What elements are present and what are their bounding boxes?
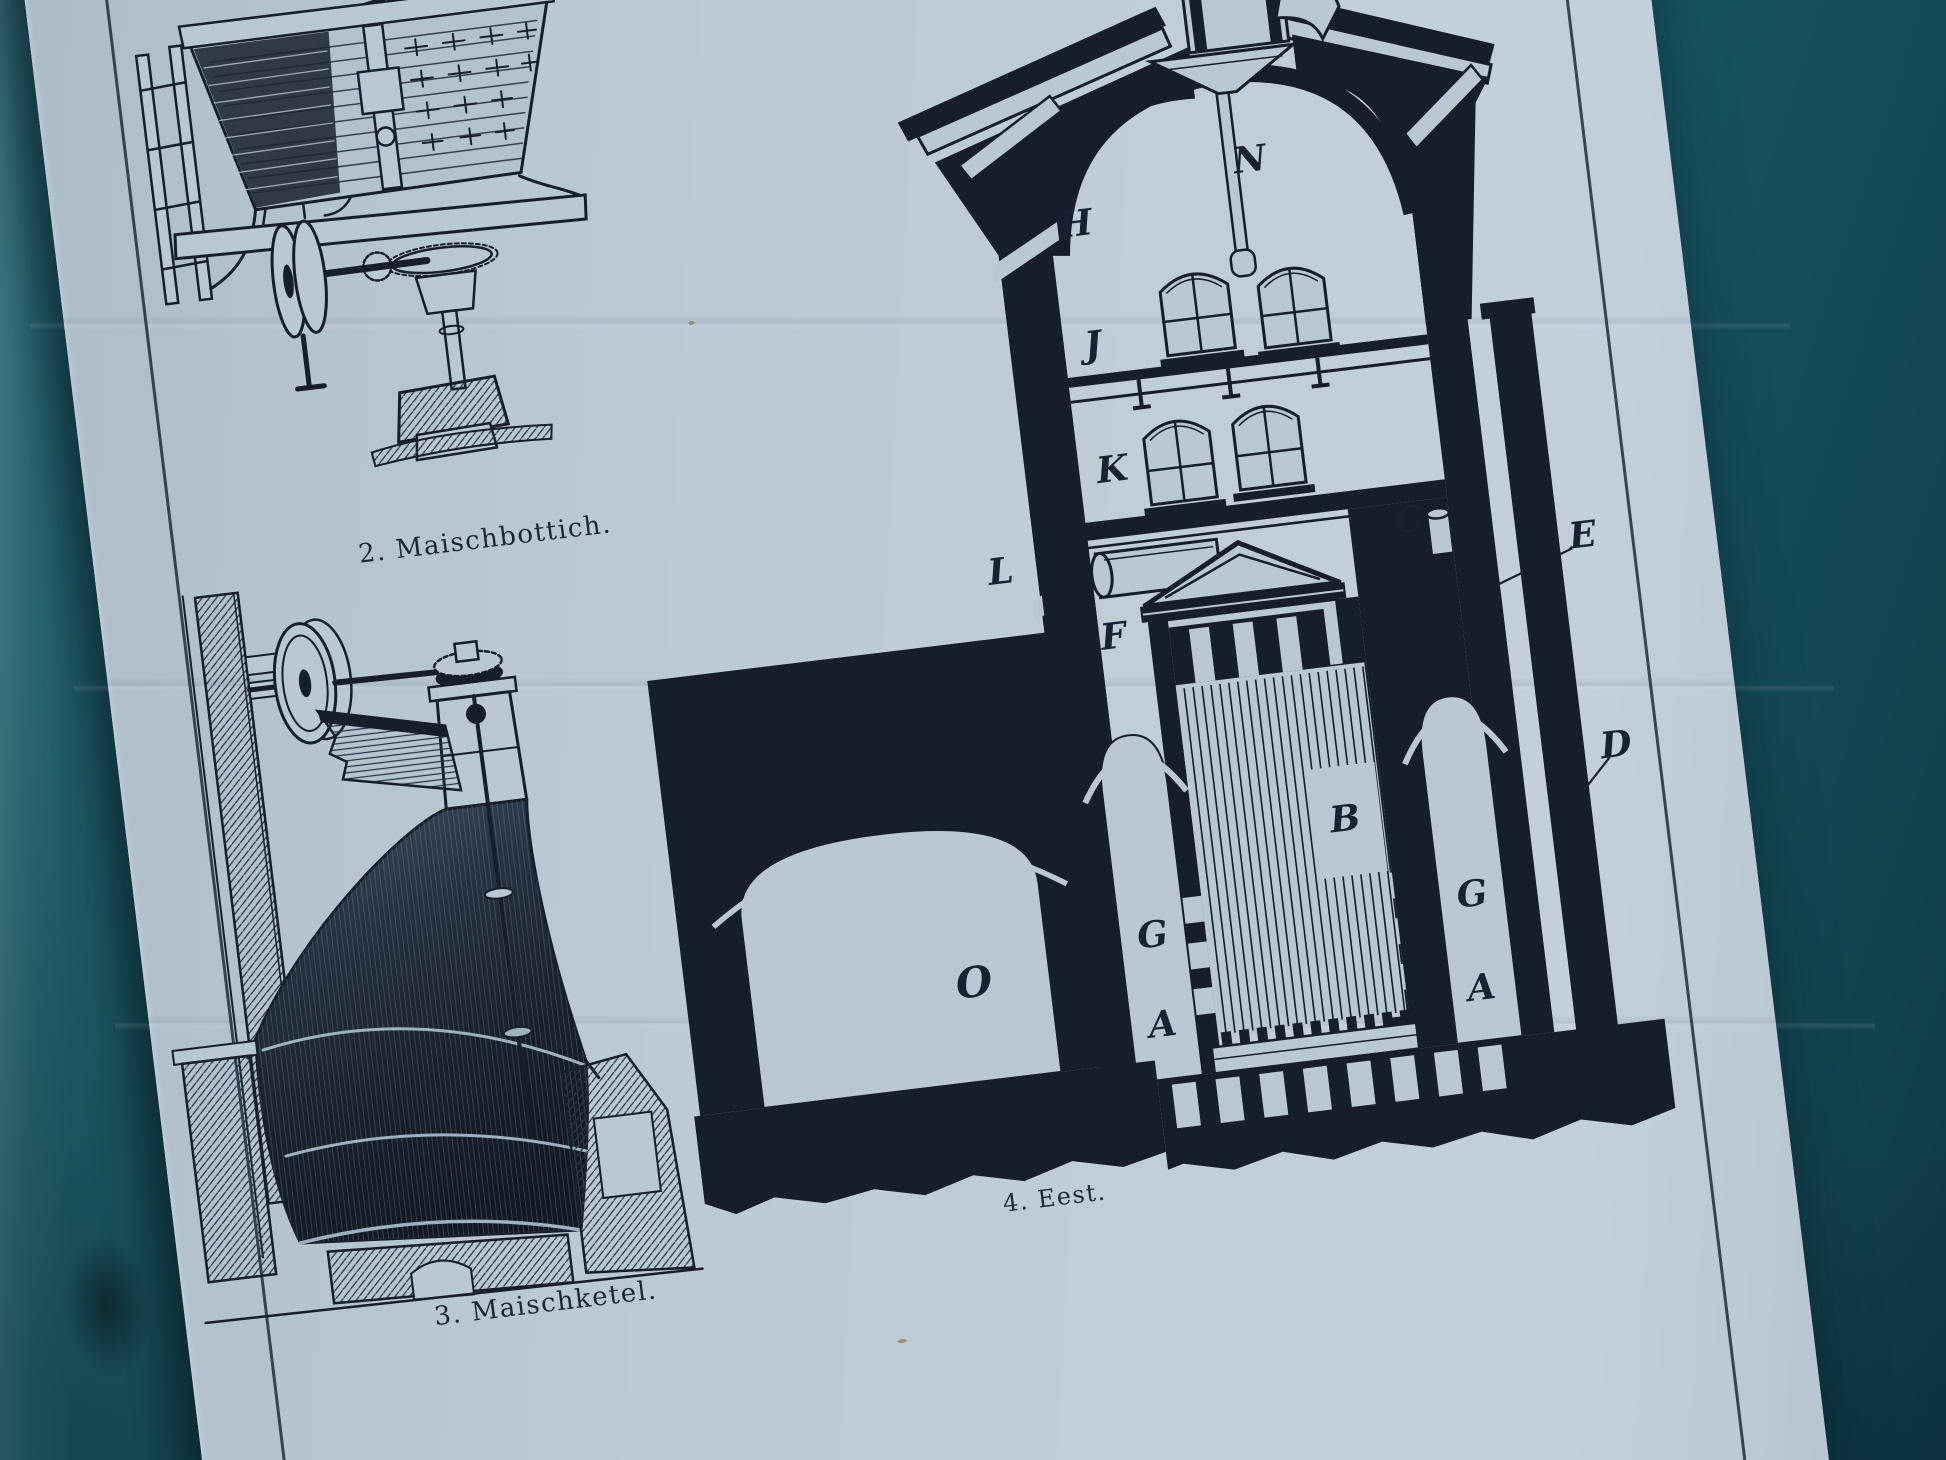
photo-scene: N H J K L C E F D B O G A G A 2. Maischb…: [0, 0, 1946, 1460]
fig4-label-n: N: [1231, 140, 1268, 180]
fig4-label-l: L: [986, 552, 1015, 591]
fig4-label-o: O: [953, 960, 994, 1006]
print-paper-sheet: N H J K L C E F D B O G A G A 2. Maischb…: [10, 0, 1830, 1460]
figure2-maischbottich: [125, 0, 661, 489]
fig4-label-c: C: [1393, 500, 1426, 539]
fig4-label-k: K: [1094, 450, 1129, 490]
fig4-label-e: E: [1567, 516, 1599, 555]
paper-corner-shadow: [53, 1225, 161, 1385]
fig4-label-g-right: G: [1455, 874, 1490, 913]
fig4-label-a-left: A: [1146, 1005, 1178, 1044]
fig4-label-h: H: [1056, 204, 1094, 244]
engravings: [10, 0, 1830, 1460]
fig4-label-d: D: [1598, 725, 1633, 765]
fig4-label-f: F: [1098, 617, 1128, 656]
fig4-label-b: B: [1328, 799, 1363, 838]
fig4-label-g-left: G: [1135, 915, 1170, 954]
figure3-maischketel: [118, 544, 702, 1329]
fig4-label-a-right: A: [1465, 968, 1497, 1007]
